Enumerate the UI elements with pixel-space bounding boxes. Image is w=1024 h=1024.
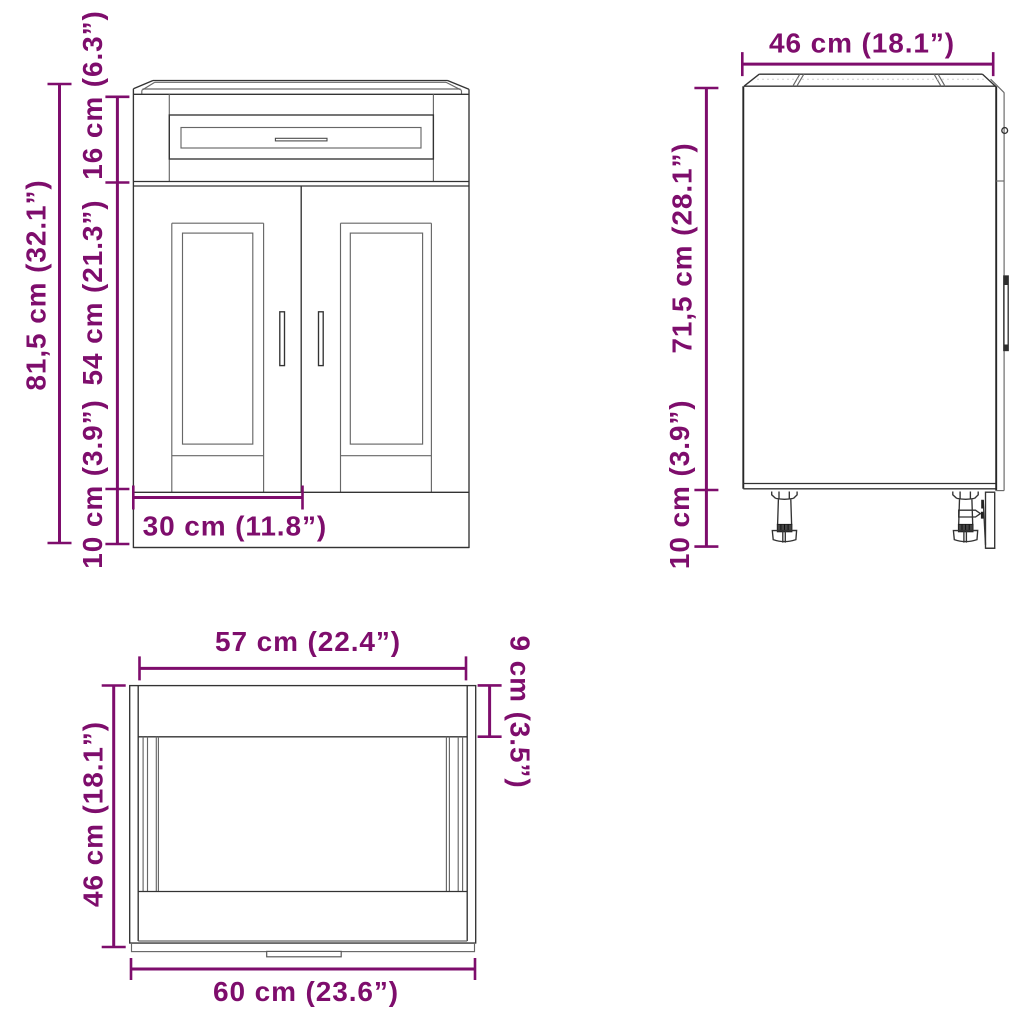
svg-text:46 cm (18.1”): 46 cm (18.1”) xyxy=(769,27,955,58)
svg-text:60 cm (23.6”): 60 cm (23.6”) xyxy=(213,976,399,1007)
svg-text:10 cm (3.9”): 10 cm (3.9”) xyxy=(77,399,108,569)
svg-text:81,5 cm (32.1”): 81,5 cm (32.1”) xyxy=(21,179,52,390)
svg-text:46 cm (18.1”): 46 cm (18.1”) xyxy=(78,721,109,907)
svg-text:57 cm (22.4”): 57 cm (22.4”) xyxy=(215,626,401,657)
svg-text:71,5 cm (28.1”): 71,5 cm (28.1”) xyxy=(667,142,698,353)
svg-text:30 cm (11.8”): 30 cm (11.8”) xyxy=(143,511,327,542)
svg-text:54 cm (21.3”): 54 cm (21.3”) xyxy=(77,199,108,385)
svg-text:9 cm (3.5”): 9 cm (3.5”) xyxy=(505,635,536,788)
svg-text:16 cm (6.3”): 16 cm (6.3”) xyxy=(77,10,108,180)
svg-text:10 cm (3.9”): 10 cm (3.9”) xyxy=(664,400,695,570)
